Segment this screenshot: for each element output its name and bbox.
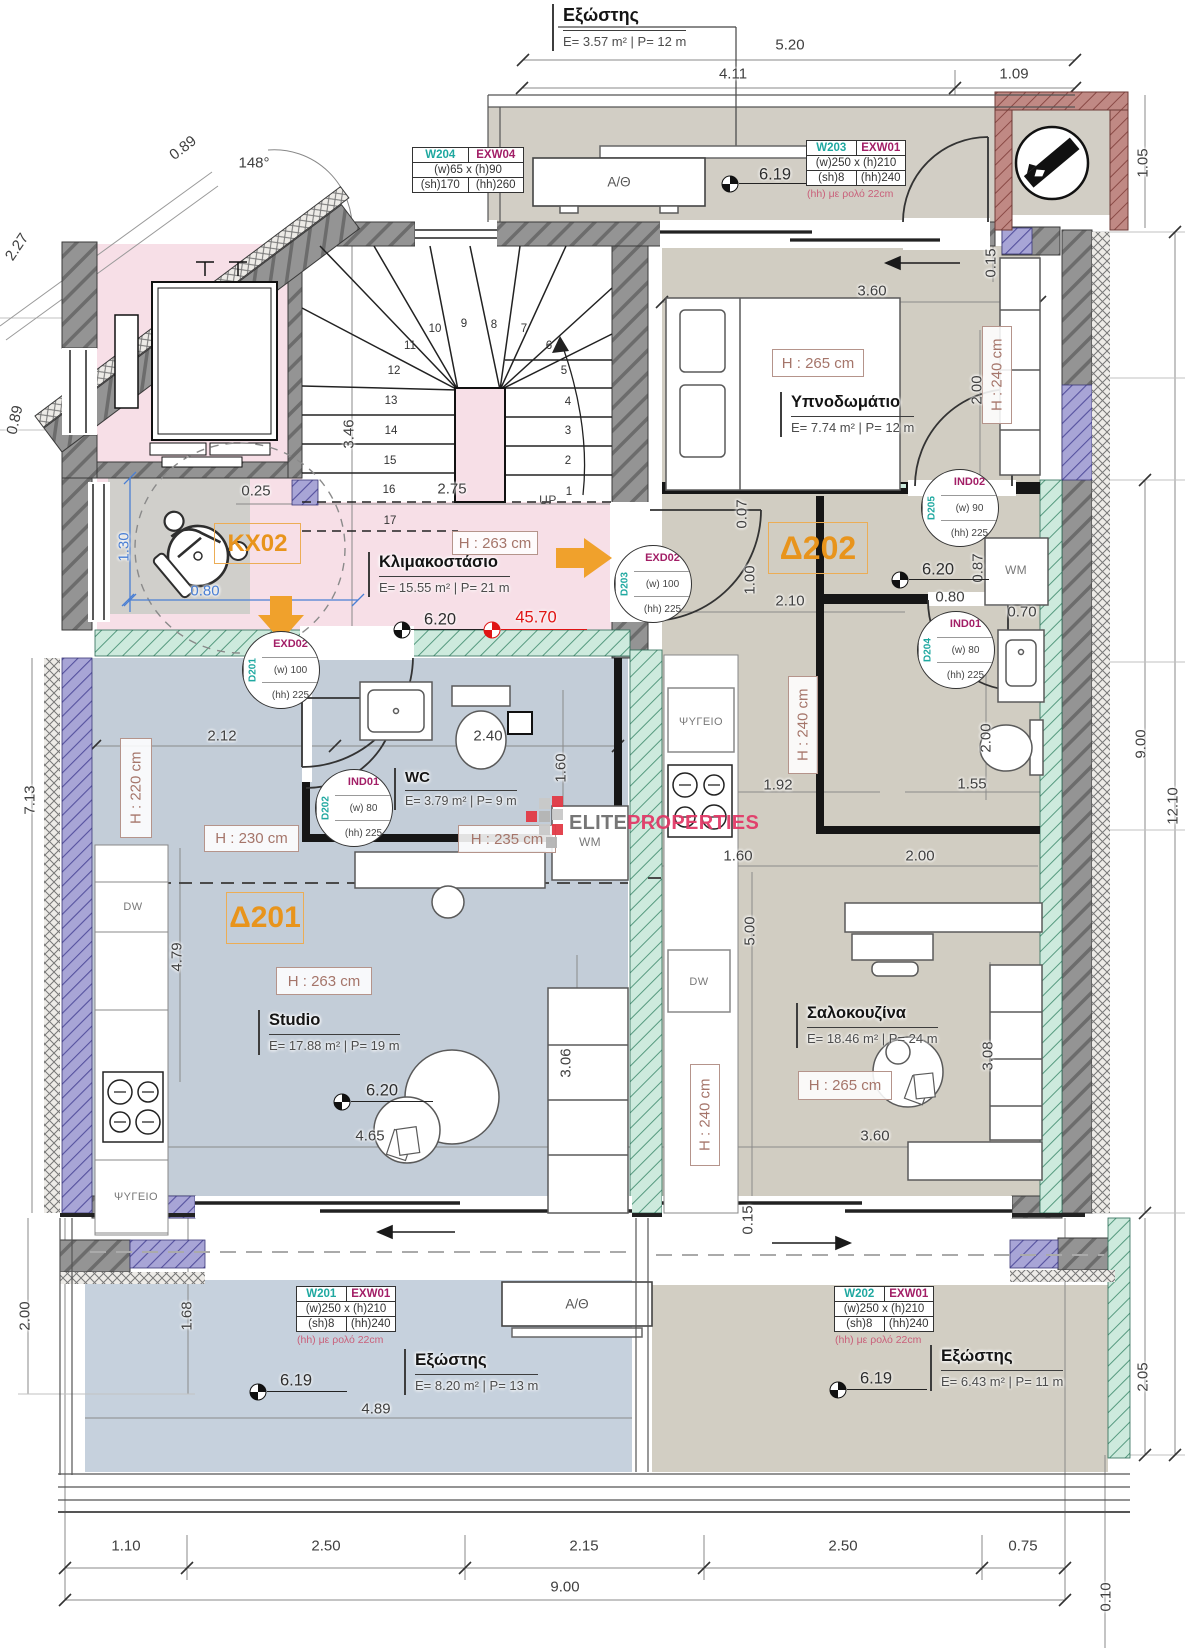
sink-icon-bath2 bbox=[998, 630, 1044, 702]
wardrobe-icon bbox=[1000, 258, 1040, 475]
counter-living bbox=[845, 903, 1042, 932]
bench-living bbox=[908, 1142, 1042, 1180]
toilet-icon-wc bbox=[452, 686, 510, 769]
floorplan-canvas: Εξώστης E= 3.57 m² | P= 12 m Υπνοδωμάτιο… bbox=[0, 0, 1200, 1648]
plan-geometry bbox=[0, 0, 1200, 1648]
closet-studio bbox=[548, 988, 628, 1213]
round-table-living bbox=[873, 1037, 943, 1107]
washing-machine-wc bbox=[552, 806, 628, 880]
brand-logo-circle bbox=[1016, 127, 1088, 199]
ac-unit-bottom bbox=[502, 1282, 652, 1337]
drain-box bbox=[508, 712, 532, 734]
washing-machine-bedroom bbox=[985, 538, 1048, 605]
bed-icon bbox=[666, 298, 900, 490]
sofa-icon bbox=[990, 965, 1042, 1140]
kitchen-counter-left bbox=[95, 845, 168, 1235]
cooktop-icon-mid bbox=[668, 765, 732, 837]
cooktop-icon-left bbox=[103, 1072, 163, 1142]
sink-icon-wc bbox=[360, 682, 432, 740]
dw-mid-box bbox=[668, 950, 730, 1012]
fridge-mid-box bbox=[668, 688, 734, 752]
